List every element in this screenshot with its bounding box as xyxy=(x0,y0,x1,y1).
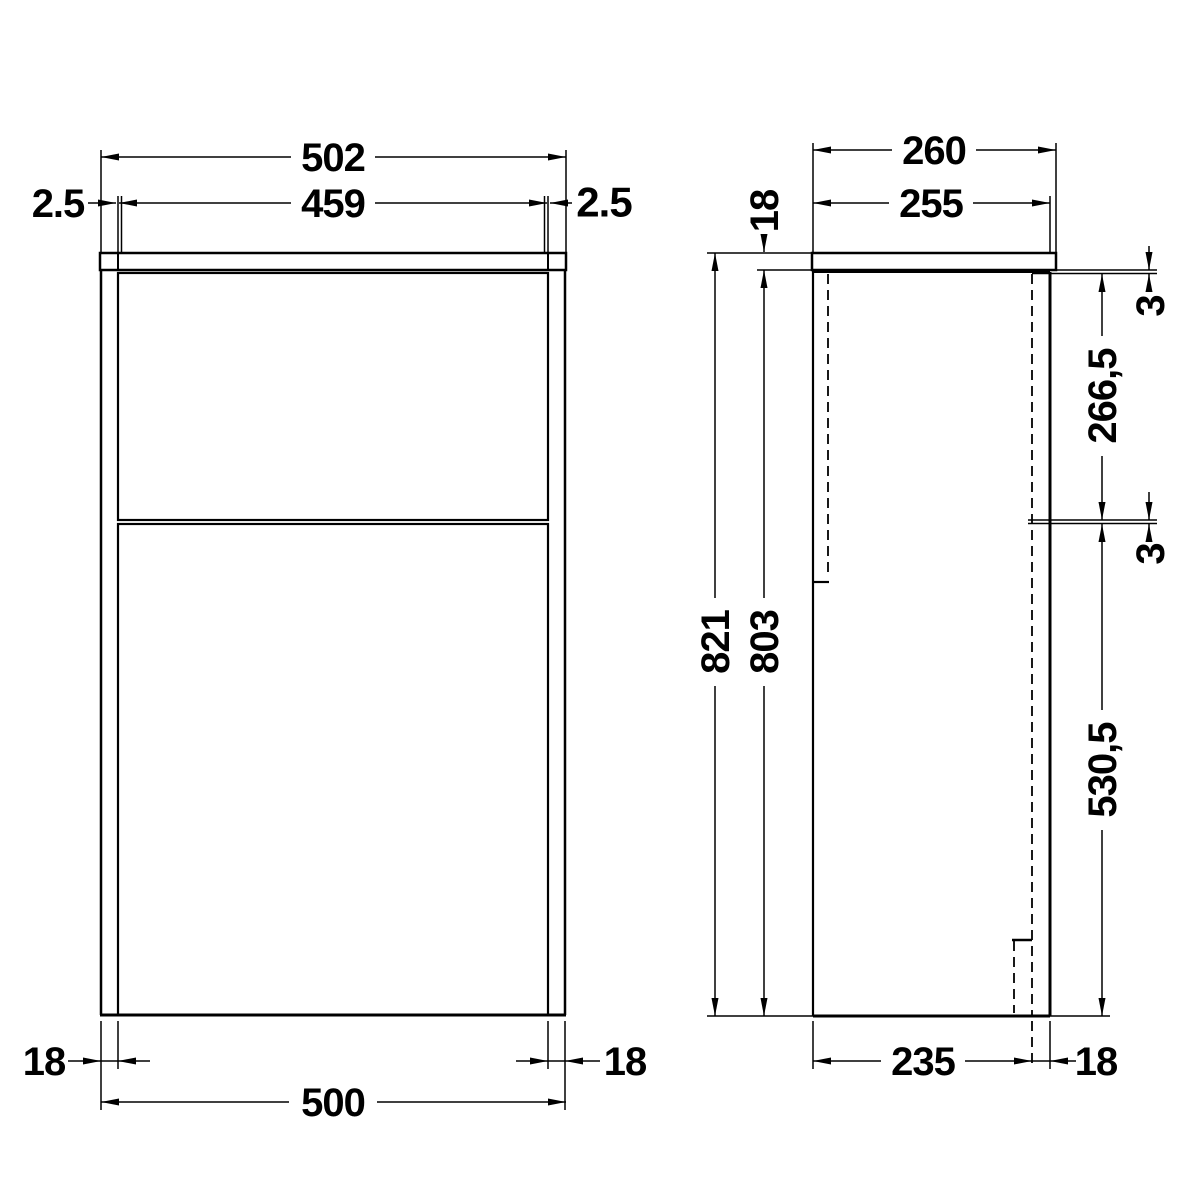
dim-side-panel-right: 18 xyxy=(604,1040,647,1084)
dim-overall-height: 821 xyxy=(694,609,738,673)
dim-door-gap-right: 2.5 xyxy=(576,179,632,226)
dim-mid-rail-thickness: 3 xyxy=(1129,543,1173,564)
dim-carcass-depth: 255 xyxy=(899,182,963,226)
upper-door-panel xyxy=(118,273,548,520)
front-view-arrows xyxy=(83,154,583,1106)
dim-worktop-thickness: 18 xyxy=(743,189,787,232)
technical-drawing-canvas: 502 459 2.5 2.5 18 18 500 xyxy=(0,0,1200,1200)
cabinet-dimension-drawing: 502 459 2.5 2.5 18 18 500 xyxy=(0,0,1200,1200)
dim-top-rail-thickness: 3 xyxy=(1129,295,1173,316)
dim-carcass-height: 803 xyxy=(743,610,787,674)
side-view: 260 255 18 821 803 3 266,5 3 530,5 235 1… xyxy=(693,129,1173,1084)
dim-back-panel-thickness: 18 xyxy=(1075,1040,1118,1084)
dim-worktop-depth: 260 xyxy=(902,129,966,173)
front-view: 502 459 2.5 2.5 18 18 500 xyxy=(23,136,647,1125)
dim-lower-section-height: 530,5 xyxy=(1081,722,1125,818)
worktop-front xyxy=(100,253,566,270)
front-view-dimension-lines xyxy=(68,150,600,1110)
dim-side-panel-left: 18 xyxy=(23,1040,66,1084)
front-view-shapes xyxy=(100,253,566,1015)
dim-door-width: 459 xyxy=(301,182,365,226)
dim-upper-section-height: 266,5 xyxy=(1081,348,1125,444)
dim-worktop-width: 502 xyxy=(301,136,365,180)
lower-door-panel xyxy=(118,524,548,1015)
dim-carcass-width: 500 xyxy=(301,1081,365,1125)
worktop-side xyxy=(812,253,1056,270)
dim-door-gap-left: 2.5 xyxy=(32,182,85,226)
dim-internal-depth: 235 xyxy=(891,1040,955,1084)
